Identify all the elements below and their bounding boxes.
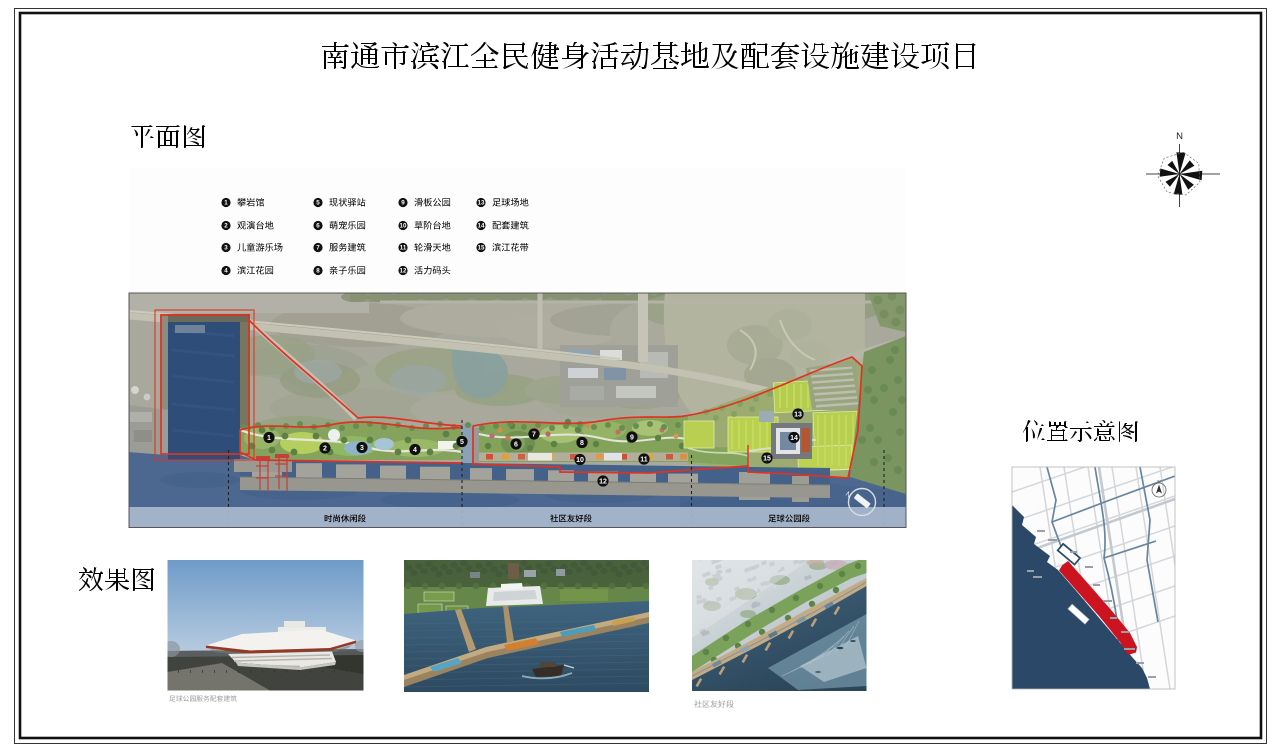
svg-text:4: 4	[413, 447, 417, 454]
svg-text:6: 6	[514, 442, 518, 449]
svg-text:N: N	[1157, 479, 1160, 484]
svg-text:3: 3	[360, 445, 364, 452]
svg-text:14: 14	[790, 435, 798, 442]
svg-text:3: 3	[224, 245, 228, 252]
svg-text:11: 11	[400, 245, 407, 252]
svg-text:13: 13	[478, 200, 485, 207]
svg-text:5: 5	[460, 439, 464, 446]
svg-text:13: 13	[794, 412, 802, 419]
svg-text:8: 8	[316, 268, 320, 275]
svg-text:10: 10	[400, 223, 407, 230]
svg-text:15: 15	[478, 245, 485, 252]
svg-text:9: 9	[630, 435, 634, 442]
svg-text:14: 14	[478, 223, 485, 230]
svg-text:6: 6	[316, 223, 320, 230]
svg-text:12: 12	[400, 268, 407, 275]
svg-text:2: 2	[323, 446, 327, 453]
svg-text:5: 5	[316, 200, 320, 207]
svg-text:12: 12	[599, 479, 607, 486]
svg-text:N: N	[1176, 131, 1183, 142]
svg-text:7: 7	[532, 432, 536, 439]
svg-text:7: 7	[316, 245, 320, 252]
svg-text:9: 9	[401, 200, 405, 207]
svg-text:2: 2	[224, 223, 228, 230]
svg-text:4: 4	[224, 268, 228, 275]
svg-text:15: 15	[763, 456, 771, 463]
svg-text:1: 1	[267, 435, 271, 442]
svg-text:10: 10	[576, 457, 584, 464]
svg-text:8: 8	[580, 440, 584, 447]
svg-text:11: 11	[640, 457, 648, 464]
svg-text:1: 1	[224, 200, 228, 207]
